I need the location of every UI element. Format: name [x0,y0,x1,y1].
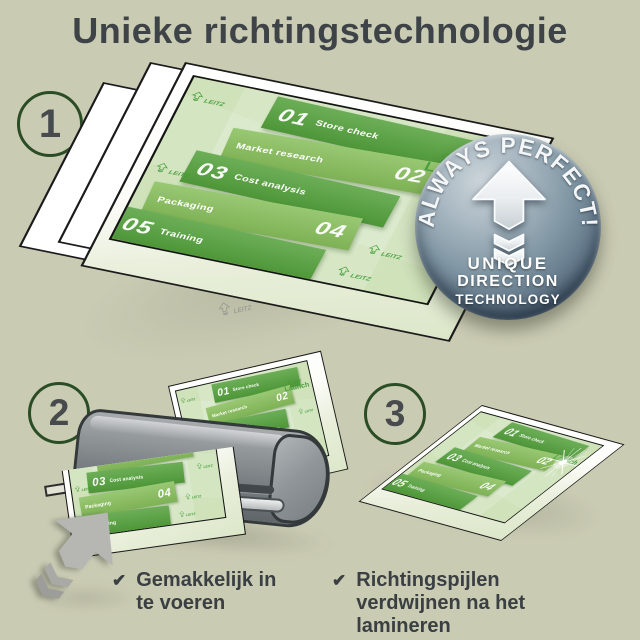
block-number: 05 [118,213,158,240]
block-label: Packaging [156,195,216,214]
block-label: Store check [314,118,381,141]
check-icon: ✔ [112,571,126,615]
block-label: Cost analysis [232,172,308,197]
direction-arrow-watermark: LEITZ [185,492,202,501]
block-label: Store check [517,433,546,444]
infographic-stage: Unieke richtingstechnologie 1 LEITZ LEIT… [0,0,640,640]
block-label: Cost analysis [460,458,492,470]
watermark-arrow-icon [180,397,186,404]
checklist-item-easy-feed: ✔ Gemakkelijk in te voeren [112,569,291,615]
watermark-arrow-icon [196,463,203,470]
block-number: 03 [192,158,232,185]
direction-arrow-icon [464,158,554,266]
watermark-arrow-icon [286,378,292,385]
checklist-item-arrows-disappear: ✔ Richtingspijlen verdwijnen na het lami… [332,569,601,637]
block-label: Training [158,227,206,245]
badge-caption: UNIQUE DIRECTION TECHNOLOGY [415,255,601,307]
check-icon: ✔ [332,571,346,637]
block-number: 04 [311,217,350,243]
step-3-number: 3 [364,383,426,445]
watermark-arrow-icon [217,301,233,318]
block-label: Cost analysis [109,474,143,484]
block-number: 04 [157,485,173,501]
block-label: Packaging [416,468,443,477]
block-number: 03 [91,474,106,489]
block-label: Store check [232,382,259,392]
block-number: 01 [216,384,231,398]
block-label: Training [405,484,427,493]
watermark-arrow-icon [179,511,186,518]
watermark-arrow-icon [185,493,192,500]
always-perfect-badge: ALWAYS PERFECT! UNIQUE DIRECTION TECHNOL… [415,134,601,320]
block-label: Market research [472,443,512,455]
page-title: Unieke richtingstechnologie [0,10,640,52]
watermark-arrow-icon [298,408,304,415]
block-number: 01 [274,104,314,131]
